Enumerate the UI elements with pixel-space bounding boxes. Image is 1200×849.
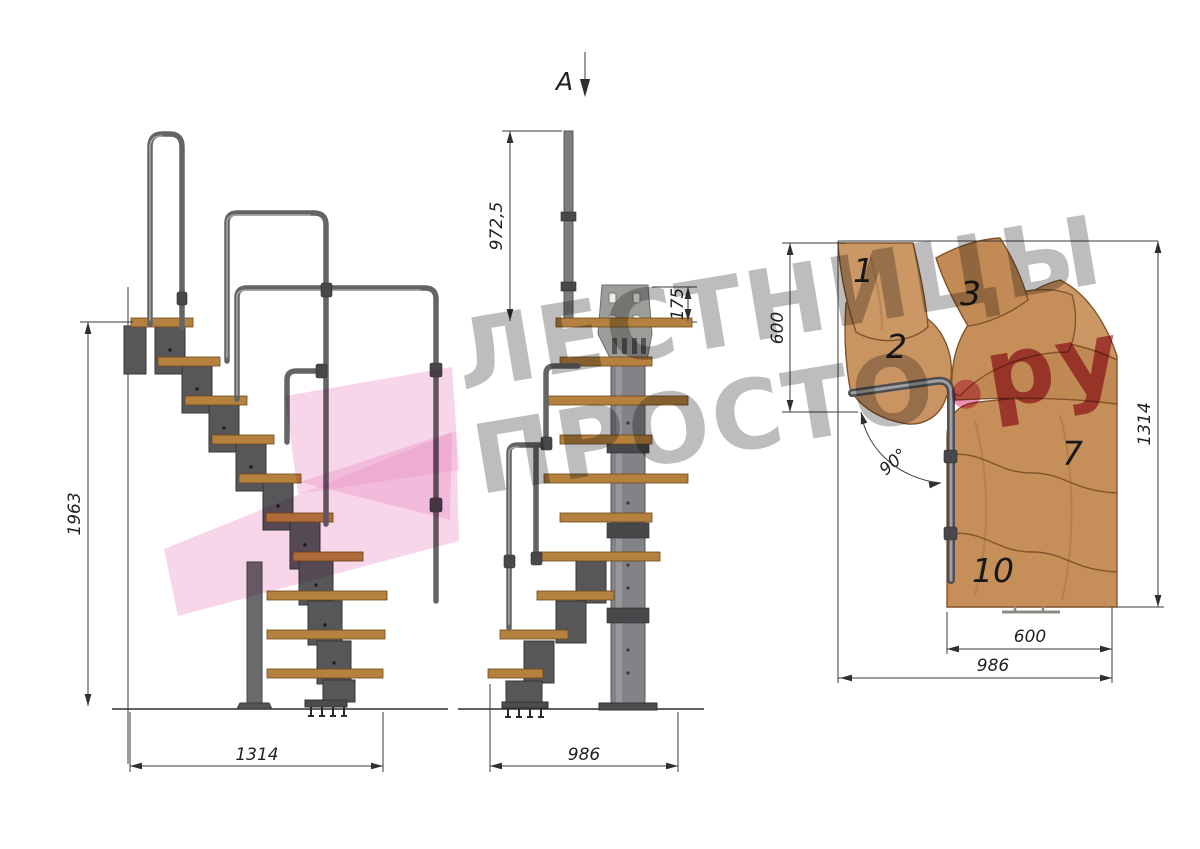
wall-bracket — [124, 326, 146, 374]
dim-plan-landing-depth: 600 — [768, 312, 788, 344]
dim-plan-total-width: 986 — [977, 656, 1010, 676]
dim-plan-flight-width: 600 — [1014, 627, 1046, 647]
step-number-2: 2 — [886, 327, 907, 366]
dim-front-width: 986 — [568, 745, 601, 765]
technical-drawing-canvas: 1963 1314 A — [0, 0, 1200, 849]
dim-handrail-height: 972,5 — [487, 202, 507, 251]
central-column — [599, 360, 657, 710]
treads-front-view — [488, 318, 692, 678]
side-elevation-view: 1963 1314 — [65, 134, 448, 772]
handrail-post — [564, 131, 573, 323]
step-number-10: 10 — [972, 551, 1014, 590]
dim-plate-offset: 175 — [668, 288, 688, 320]
dim-plan-turn-angle: 90° — [876, 445, 912, 480]
front-elevation-view: A — [458, 52, 704, 772]
section-mark: A — [554, 52, 590, 97]
dim-side-height: 1963 — [65, 492, 85, 535]
step-number-7: 7 — [1062, 434, 1083, 473]
plan-view: 1 2 3 7 10 600 1314 600 — [768, 238, 1164, 683]
staircase-drawing: 1963 1314 A — [0, 0, 1200, 849]
step-number-1: 1 — [853, 251, 874, 290]
dim-plan-total-depth: 1314 — [1135, 402, 1155, 445]
dim-side-width: 1314 — [235, 745, 278, 765]
step-number-3: 3 — [960, 274, 981, 313]
section-label: A — [554, 67, 573, 96]
